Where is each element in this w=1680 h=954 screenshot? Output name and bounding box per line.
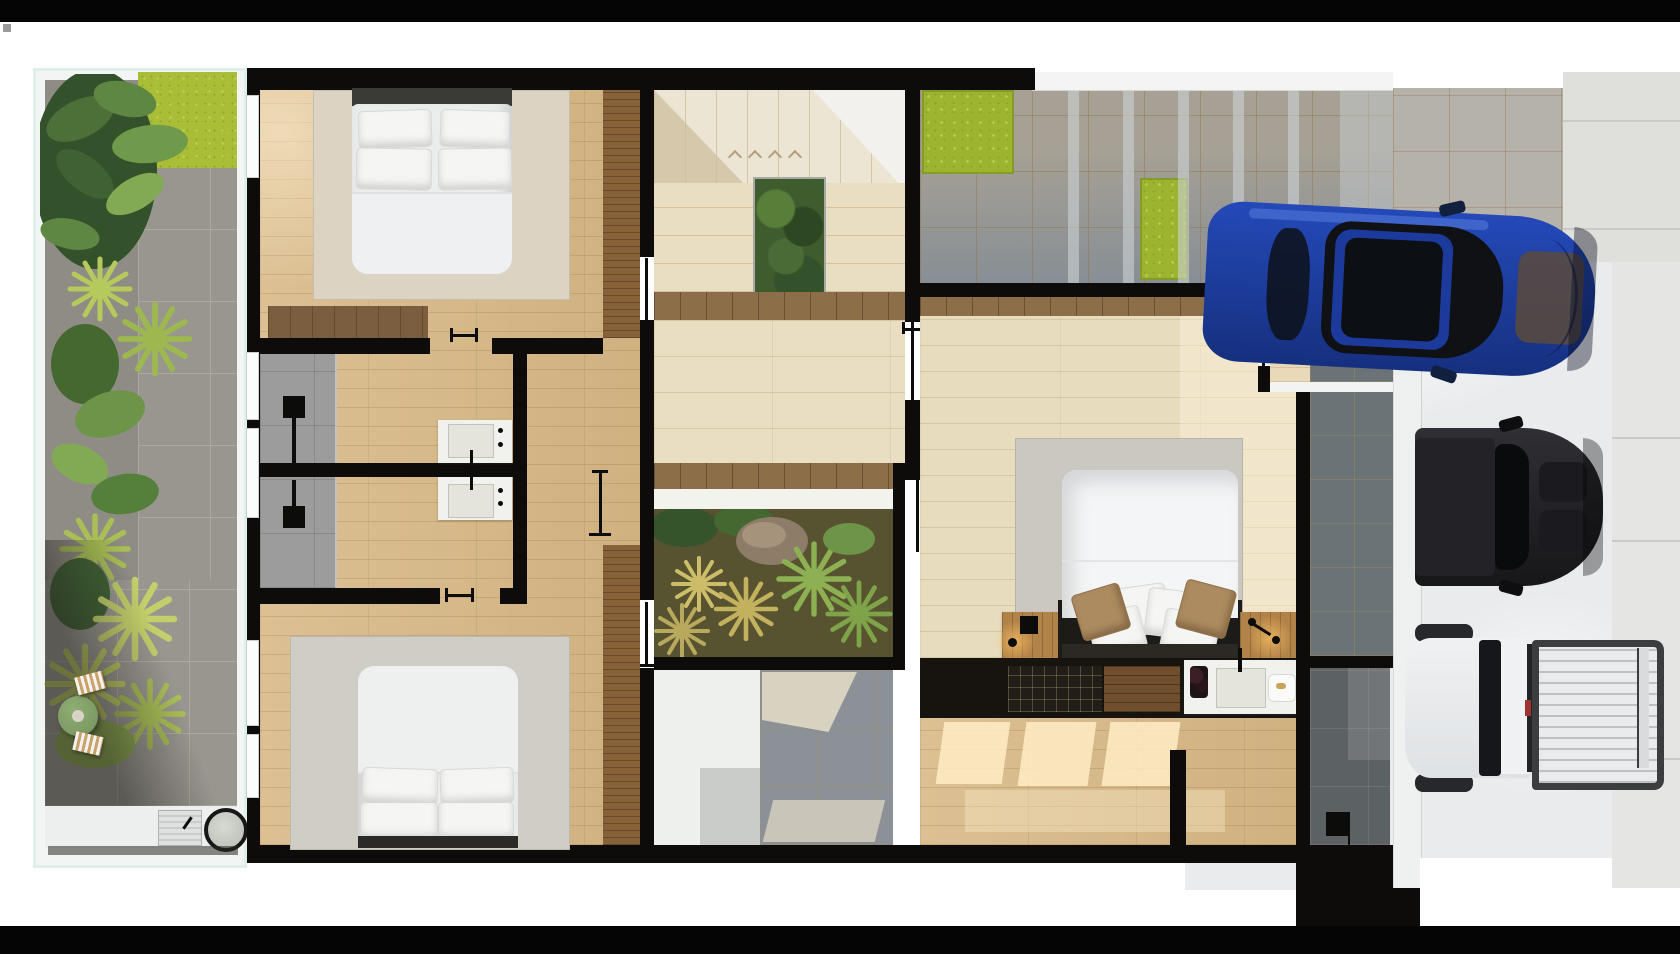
sidewalk [1612,262,1680,888]
outdoor-table [58,696,98,736]
soap-dispenser [498,501,503,506]
window-sun-patch [1018,722,1097,786]
door-symbol [640,664,654,667]
soap-dispenser [498,442,503,447]
garden-shadow [45,540,237,806]
wall-interior [260,588,440,604]
decor-glasses [1190,666,1208,698]
courtyard-sill [654,489,893,509]
truck-windshield [1479,640,1501,776]
truck-marker [1525,700,1531,716]
car-roof [1330,229,1454,351]
hood-vent [1539,462,1587,502]
wall-corridor [640,68,654,256]
pillow [360,802,438,840]
door-leaf [645,258,648,320]
gold-accessory [1276,683,1286,689]
bed-duvet [352,192,512,274]
speaker [1020,616,1038,634]
windshield [1495,444,1529,570]
wall-stub [1170,750,1186,845]
wall-master-east [1296,392,1310,845]
shower-head [283,396,305,418]
window [246,95,259,178]
outdoor-sink [158,810,202,846]
laundry-shadow [700,768,760,845]
front-bumper [1583,438,1603,576]
wall-interior [492,338,603,354]
shower-pipe [292,418,296,468]
white-pickup-truck [1405,624,1657,794]
side-path [1310,392,1393,656]
faucet [1238,648,1242,672]
wardrobe [603,90,640,338]
shower-cord [1348,836,1350,850]
sidewalk-joint [1612,540,1680,542]
door-leaf [911,322,914,400]
wall-thin [916,480,919,552]
truck-tailgate [1637,648,1649,768]
wall-interior [513,354,527,604]
courtyard-plants [654,509,893,659]
door-symbol [450,328,453,342]
car-roof [1415,438,1495,576]
window [246,640,259,726]
pillow [439,767,514,806]
apron-edge [1420,858,1612,926]
pillow [356,147,433,190]
soap-dispenser [498,428,503,433]
wall-courtyard-east [893,463,905,670]
window [246,734,259,798]
wall-interior [260,463,527,477]
faucet [470,474,473,490]
wall-corridor [640,668,654,845]
window-sun-patch [965,790,1225,832]
carport-stripe [1178,88,1189,284]
window [246,428,259,518]
console-shelf [1104,666,1180,712]
pillow [438,802,514,840]
pillow [438,147,513,190]
stair-planter [753,177,826,300]
wood-landing [654,292,905,320]
door-symbol [640,254,654,257]
pillow [357,109,432,150]
carport-stripe [1068,88,1079,284]
lawn-patch [922,90,1014,174]
shower-head [283,506,305,528]
courtyard-bench [654,463,893,489]
wall-shower-north [1296,656,1400,668]
door-symbol [445,588,448,602]
corner-mark [3,24,11,32]
door-leaf [645,602,648,666]
clothes-stand [589,533,611,536]
front-boundary-wall [1032,72,1393,91]
sheet-fold [1062,560,1238,562]
letterbox-bottom-bar [0,926,1680,954]
carport-stripe [1123,88,1134,284]
counter-shadow [48,846,238,855]
sink-basin [1216,668,1266,708]
dresser [268,306,428,338]
wall-corridor [640,320,654,600]
wall-interior [500,588,527,604]
shower-head [1326,812,1350,836]
bed-duvet [358,666,518,774]
hood-vent [1539,510,1587,550]
sidewalk-joint [1612,437,1680,439]
door-symbol [471,588,474,602]
door-symbol [475,328,478,342]
shower-control [1349,851,1354,856]
pillow [439,109,510,149]
wine-rack [1008,666,1102,712]
wall-courtyard-south [654,657,905,670]
window-sun-patch [1102,722,1181,786]
sunroof [1340,237,1443,342]
car-blue-sedan [1201,196,1599,384]
bed-headboard [358,836,518,848]
pillow [361,767,438,806]
clothes-stand [599,470,602,536]
patio-sun-patch [763,800,885,842]
wall-hall-east [905,400,920,480]
faucet [470,450,473,466]
shower-light [1348,668,1390,760]
apron-edge [1612,888,1680,926]
wardrobe [603,545,640,845]
window [246,352,259,420]
door-symbol [902,322,905,334]
window-sun-patch [936,722,1011,784]
bedside-lamp [1272,636,1280,644]
bedside-lamp [1008,638,1017,647]
shower-pipe [292,480,296,508]
soap-dispenser [498,488,503,493]
table-center [72,710,84,722]
sidewalk-joint [1563,120,1680,122]
floor-plan-render [0,0,1680,954]
letterbox-top-bar [0,0,1680,22]
wall-interior [260,338,430,354]
car-black [1415,422,1607,592]
